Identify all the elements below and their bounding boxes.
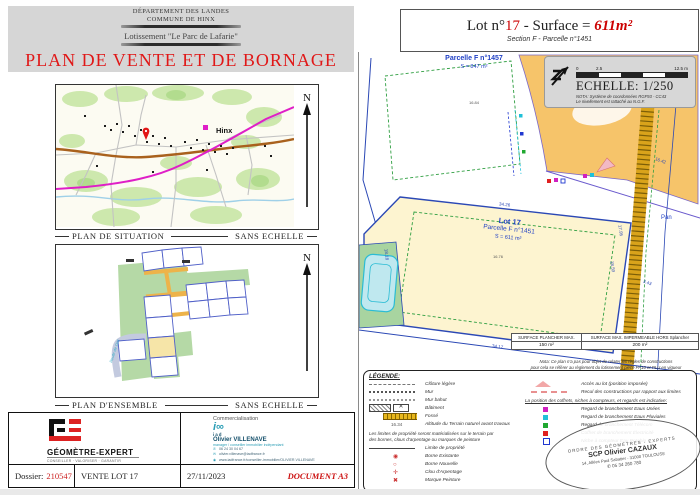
legend-note-line2: des bornes, clous d'arpentage ou marques… xyxy=(369,437,521,443)
lot-title-middle: - Surface = xyxy=(520,18,594,34)
agent-web: www.iadfrance.fr/conseiller-immobilier/O… xyxy=(219,458,315,462)
highlighted-lot xyxy=(148,336,176,358)
legend-indicative-note: La position des coffrets, niches à compt… xyxy=(525,398,691,403)
legend-label: Regard de branchement Eaux Usées xyxy=(581,407,660,412)
scale-tick-0: 0 xyxy=(576,66,579,71)
scale-box: 0 2.5 12.5 m ECHELLE: 1/250 NOTA: Systèm… xyxy=(544,56,696,108)
legend-label: Mur bahut xyxy=(425,398,447,403)
caption-dash xyxy=(171,236,228,237)
dim-left: 18.18 xyxy=(384,249,390,261)
surveyor-tagline: CONSEILLER · VALORISER · GARANTIR xyxy=(47,457,139,463)
separator-bar xyxy=(121,25,241,28)
geometre-expert-logo xyxy=(47,419,85,441)
commune-label: COMMUNE DE HINX xyxy=(147,16,215,23)
situation-no-scale: SANS ECHELLE xyxy=(232,231,307,241)
legend-label: Borne Existante xyxy=(425,454,459,459)
scale-segment xyxy=(665,73,687,77)
scale-bar-segments xyxy=(576,72,688,78)
agent-email: olivier.villenave@iadfrance.fr xyxy=(219,452,265,456)
legend-left-column: Clôture légère Mur Mur bahut ✕Bâtiment F… xyxy=(369,380,521,485)
ensemble-map-frame: Route de Dax N xyxy=(55,244,319,398)
scan-edge xyxy=(0,489,700,495)
situation-caption: PLAN DE SITUATION xyxy=(69,231,167,241)
agent-web-row: ◉www.iadfrance.fr/conseiller-immobilier/… xyxy=(213,458,354,463)
surface-value-2: 200 m² xyxy=(581,342,698,350)
paint-mark-symbol: ✖ xyxy=(369,478,421,484)
legend-label: Marque Peinture xyxy=(425,478,460,483)
document-date: 27/11/2023 xyxy=(187,471,225,481)
boundary-swatch xyxy=(369,448,421,449)
surface-table: SURFACE PLANCHER MAX. SURFACE MAX. IMPER… xyxy=(511,333,699,350)
caption-dash xyxy=(165,405,228,406)
dossier-number: 210547 xyxy=(46,471,72,481)
new-marker-symbol: ○ xyxy=(369,462,421,468)
legend-label: Clou d'Arpentage xyxy=(425,470,462,475)
legend-label: Recul des constructions par rapport aux … xyxy=(581,390,681,395)
legend-note: Les limites de propriété seront matérial… xyxy=(369,431,521,443)
legend-label: Fossé xyxy=(425,414,438,419)
dossier-label: Dossier: xyxy=(15,471,43,481)
agent-phone: 06 24 30 04 67 xyxy=(219,447,243,451)
surface-nota-line1: Nota: Ce plan n'a pas pour objet de rela… xyxy=(511,359,700,365)
site-plan: Parcelle F n°1457 S = 847 m² Lot 17 Parc… xyxy=(358,52,700,495)
department-label: DÉPARTEMENT DES LANDES xyxy=(133,8,230,15)
north-arrow-situation: N xyxy=(299,93,315,211)
caption-dash xyxy=(55,405,69,406)
commercial-cell: Commercialisation i∞ iad Olivier VILLENA… xyxy=(181,413,354,464)
north-arrow-ensemble: N xyxy=(299,253,315,375)
north-arrow-icon xyxy=(301,103,313,211)
project-name: VENTE LOT 17 xyxy=(81,471,138,481)
date-doc-cell: 27/11/2023 DOCUMENT A3 xyxy=(181,465,354,487)
sewage-square xyxy=(525,407,577,412)
scale-ticks: 0 2.5 12.5 m xyxy=(576,66,688,72)
parcel-1457-label: Parcelle F n°1457 S = 847 m² xyxy=(409,55,539,71)
title-block: GÉOMÈTRE-EXPERT CONSEILLER · VALORISER ·… xyxy=(8,412,355,488)
lot-surface: 611m² xyxy=(594,18,632,34)
project-cell: VENTE LOT 17 xyxy=(75,465,181,487)
setback-swatch xyxy=(525,391,577,393)
neighbour-pool xyxy=(361,254,399,313)
compass-north-icon xyxy=(549,63,571,89)
town-marker-square xyxy=(203,125,208,130)
situation-caption-row: PLAN DE SITUATION SANS ECHELLE xyxy=(55,231,317,241)
legend-label: Bâtiment xyxy=(425,406,444,411)
legend-label: Altitude du Terrain naturel avant travau… xyxy=(425,422,510,427)
parcel-1457-name: Parcelle F n°1457 xyxy=(409,55,539,64)
altitude-top: 16.84 xyxy=(469,100,479,105)
lot-title-prefix: Lot n° xyxy=(467,18,505,34)
title-block-footer: Dossier: 210547 VENTE LOT 17 27/11/2023 … xyxy=(9,465,354,487)
scale-segment xyxy=(577,73,599,77)
pan-label: Pan xyxy=(661,215,672,223)
ensemble-map: Route de Dax xyxy=(56,245,294,395)
separator-bar xyxy=(121,43,241,46)
fence-swatch xyxy=(369,384,421,385)
scale-segment xyxy=(643,73,665,77)
ensemble-no-scale: SANS ECHELLE xyxy=(232,400,307,410)
surface-value-1: 150 m² xyxy=(512,342,582,350)
scale-tick-125: 12.5 m xyxy=(674,66,688,71)
legend-label: Clôture légère xyxy=(425,382,455,387)
access-swatch xyxy=(525,381,577,387)
legend-label: Limite de propriété xyxy=(425,446,465,451)
lot-title-box: Lot n°17 - Surface = 611m² Section F - P… xyxy=(400,9,699,52)
scale-bar: 0 2.5 12.5 m xyxy=(576,66,688,78)
lot-subtitle: Section F - Parcelle n°1451 xyxy=(507,36,592,43)
surface-header-1: SURFACE PLANCHER MAX. xyxy=(512,334,582,342)
north-label: N xyxy=(303,93,311,103)
town-label: Hinx xyxy=(216,126,233,135)
altitude-swatch: 16.34 xyxy=(369,422,421,427)
survey-nail-symbol: ✛ xyxy=(369,470,421,476)
situation-map-frame: Hinx N xyxy=(55,84,319,230)
low-wall-swatch xyxy=(369,399,421,401)
north-arrow-icon xyxy=(301,263,313,375)
caption-dash xyxy=(55,236,69,237)
parcel-1457-area: S = 847 m² xyxy=(409,64,539,71)
north-label: N xyxy=(303,253,311,263)
ensemble-caption: PLAN D'ENSEMBLE xyxy=(69,400,161,410)
stormwater-square xyxy=(525,415,577,420)
surveyor-brand: GÉOMÈTRE-EXPERT xyxy=(47,448,180,457)
situation-map: Hinx xyxy=(56,85,294,227)
telecom-square xyxy=(525,423,577,428)
scale-title: ECHELLE: 1/250 xyxy=(576,79,690,94)
ensemble-caption-row: PLAN D'ENSEMBLE SANS ECHELLE xyxy=(55,400,317,410)
lotissement-label: Lotissement "Le Parc de Lafarie" xyxy=(124,31,238,41)
document-header: DÉPARTEMENT DES LANDES COMMUNE DE HINX L… xyxy=(8,6,354,72)
scale-segment xyxy=(599,73,621,77)
building-swatch: ✕ xyxy=(369,404,421,412)
page-title: PLAN DE VENTE ET DE BORNAGE xyxy=(25,50,337,71)
caption-dash xyxy=(307,405,317,406)
dossier-cell: Dossier: 210547 xyxy=(9,465,75,487)
scale-nota-2: Le nivellement est rattaché au N.G.F. xyxy=(576,99,690,104)
existing-marker-symbol: ◉ xyxy=(369,454,421,460)
document-format: DOCUMENT A3 xyxy=(288,471,348,481)
scale-segment xyxy=(621,73,643,77)
caption-dash xyxy=(307,236,317,237)
scale-tick-25: 2.5 xyxy=(596,66,602,71)
wall-swatch xyxy=(369,391,421,393)
legend-label: Mur xyxy=(425,390,433,395)
legend-label: Borne Nouvelle xyxy=(425,462,458,467)
legend-label: Accès au lot (position imposée) xyxy=(581,382,648,387)
dim-top: 34.26 xyxy=(499,201,511,207)
lot-number: 17 xyxy=(505,18,520,34)
lot-title: Lot n°17 - Surface = 611m² xyxy=(467,18,632,35)
surveyor-cell: GÉOMÈTRE-EXPERT CONSEILLER · VALORISER ·… xyxy=(9,413,181,464)
altitude-sample: 16.34 xyxy=(391,422,402,427)
ditch-swatch xyxy=(369,413,421,420)
altitude-lot: 16.76 xyxy=(493,254,503,259)
surface-header-2: SURFACE MAX. IMPERMEABLE HORS Splancher xyxy=(581,334,698,342)
surface-nota: Nota: Ce plan n'a pas pour objet de rela… xyxy=(511,359,700,371)
iad-logo-icon: i∞ xyxy=(213,422,354,432)
